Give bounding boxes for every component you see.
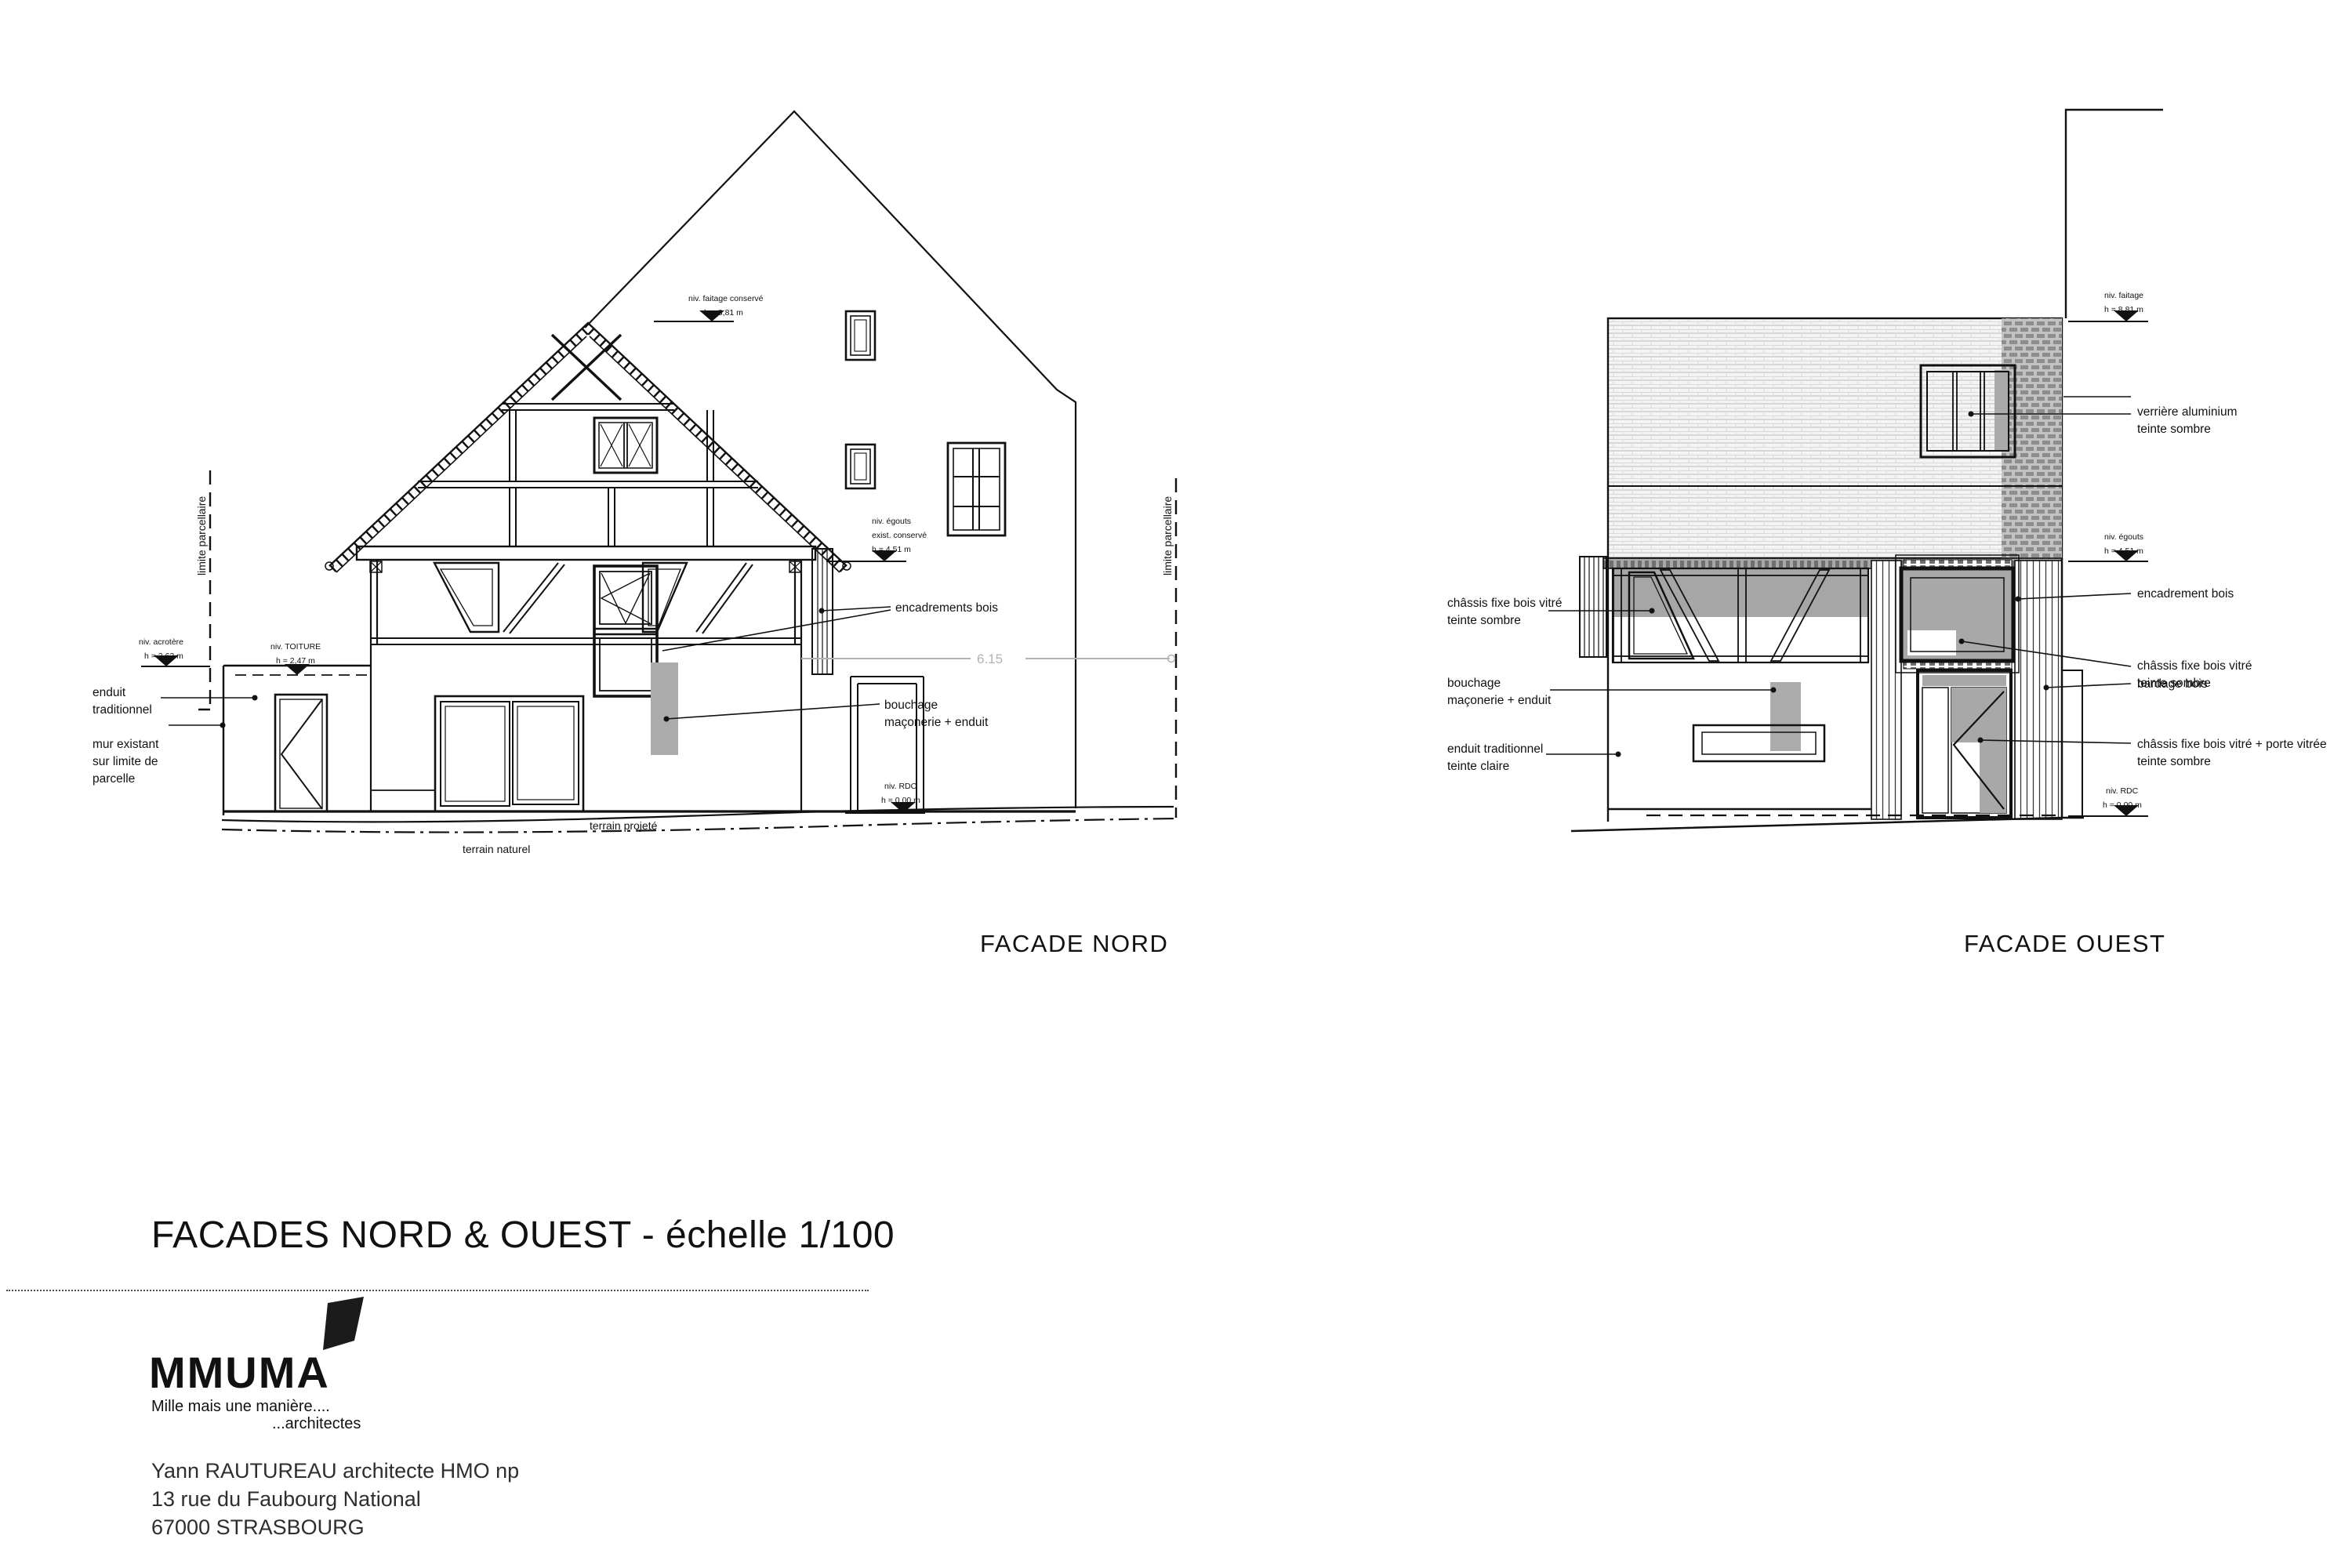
bouchage-patch — [651, 662, 678, 755]
neighbour-window-large — [948, 443, 1005, 535]
mur-label-3: parcelle — [93, 772, 135, 786]
terrain-projete-line — [222, 807, 1174, 822]
roof-ouest — [1608, 318, 2062, 558]
egouts-label-2: exist. conservé — [872, 531, 927, 540]
bouchage-label-1: bouchage — [884, 699, 938, 712]
encadrement-label: encadrement bois — [2137, 587, 2234, 601]
passage-door — [851, 677, 924, 811]
chassis-droit-label-1: châssis fixe bois vitré — [2137, 659, 2252, 673]
drawing-sheet: 6.15 niv. faitage conservé h = 8,81 m ni… — [0, 0, 2352, 1568]
sliding-glass-door — [435, 696, 583, 811]
toiture-marker — [285, 664, 310, 675]
chassis-porte-label-1: châssis fixe bois vitré + porte vitrée — [2137, 738, 2327, 751]
dimension-615: 6.15 — [801, 652, 1175, 666]
architect-address-block: Yann RAUTUREAU architecte HMO np 13 rue … — [151, 1457, 519, 1541]
annex-door — [275, 695, 327, 811]
egouts-ouest-label-1: niv. égouts — [2104, 532, 2143, 542]
attic-window — [594, 418, 657, 473]
toiture-label-1: niv. TOITURE — [270, 642, 321, 652]
terrain-naturel-label: terrain naturel — [463, 843, 530, 855]
architect-street: 13 rue du Faubourg National — [151, 1485, 519, 1513]
limite-gauche-label: limite parcellaire — [195, 496, 208, 575]
bouchage-ouest-label-2: maçonerie + enduit — [1447, 694, 1552, 707]
egouts-ouest-label-2: h = 4,51 m — [2104, 546, 2143, 556]
facade-ouest-drawing: niv. faitage h = 8,81 m niv. égouts h = … — [1447, 110, 2327, 957]
gable-roof — [325, 323, 851, 572]
logo-tagline-2: ...architectes — [272, 1415, 361, 1433]
leaders-nord — [161, 607, 891, 728]
sheet-title: FACADES NORD & OUEST - échelle 1/100 — [151, 1214, 895, 1257]
architect-city: 67000 STRASBOURG — [151, 1513, 519, 1541]
facade-nord-drawing: 6.15 niv. faitage conservé h = 8,81 m ni… — [93, 111, 1176, 957]
chassis-gauche-label-2: teinte sombre — [1447, 614, 1521, 627]
egouts-label-1: niv. égouts — [872, 517, 911, 526]
logo-tagline-1: Mille mais une manière.... — [151, 1398, 330, 1416]
rdc-label-1: niv. RDC — [884, 782, 917, 791]
verriere-dark-zone — [2002, 318, 2062, 558]
neighbour-window-small-bottom — [846, 445, 875, 488]
rdc-ouest-label-1: niv. RDC — [2106, 786, 2139, 796]
encadrements-label: encadrements bois — [895, 601, 998, 615]
mur-label-1: mur existant — [93, 738, 159, 751]
ground-line-ouest — [1571, 818, 2084, 831]
enduit-label-1: enduit — [93, 686, 126, 699]
terrain-projete-label: terrain projeté — [590, 819, 658, 832]
ground-floor-nord — [223, 662, 1076, 811]
verriere-label-2: teinte sombre — [2137, 423, 2211, 436]
bardage-strip-left — [1871, 561, 1901, 819]
dark-fixed-window — [1896, 555, 2019, 673]
facade-nord-caption: FACADE NORD — [980, 930, 1168, 957]
mur-label-2: sur limite de — [93, 755, 158, 768]
bouchage-label-2: maçonerie + enduit — [884, 716, 989, 729]
limite-droite-label: limite parcellaire — [1161, 496, 1174, 575]
egouts-label-3: h = 4,51 m — [872, 545, 911, 554]
right-pilaster — [2062, 670, 2082, 818]
enduit-ouest-label-1: enduit traditionnel — [1447, 742, 1543, 756]
slot-window — [1693, 725, 1824, 761]
dimension-text: 6.15 — [977, 652, 1003, 666]
divider-dotted-line — [6, 1290, 869, 1291]
faitage-label-2: h = 8,81 m — [704, 308, 743, 318]
neighbour-profile — [2066, 110, 2163, 318]
facade-ouest-caption: FACADE OUEST — [1964, 930, 2165, 957]
neighbour-window-small-top — [846, 311, 875, 360]
acrotere-label-2: h = 2,62 m — [144, 652, 183, 661]
architect-name: Yann RAUTUREAU architecte HMO np — [151, 1457, 519, 1485]
eaves-beam — [357, 546, 815, 560]
gable-half-timbering — [418, 335, 758, 546]
bardage-label: bardage bois — [2137, 677, 2208, 691]
faitage-ouest-label-1: niv. faitage — [2104, 291, 2143, 300]
logo-text: MMUMA — [149, 1347, 330, 1398]
chassis-porte-label-2: teinte sombre — [2137, 755, 2211, 768]
annex — [223, 666, 371, 815]
chassis-gauche-label-1: châssis fixe bois vitré — [1447, 597, 1562, 610]
toiture-label-2: h = 2,47 m — [276, 656, 315, 666]
glazed-door — [1918, 670, 2011, 818]
rdc-label-2: h = 0.00 m — [881, 796, 920, 805]
terrain-naturel-line — [222, 818, 1176, 833]
rdc-ouest-label-2: h = 0.00 m — [2103, 800, 2142, 810]
faitage-ouest-label-2: h = 8,81 m — [2104, 305, 2143, 314]
annex-side-strip — [1580, 557, 1606, 657]
faitage-label-1: niv. faitage conservé — [688, 294, 764, 303]
enduit-ouest-label-2: teinte claire — [1447, 760, 1509, 773]
verriere-label-1: verrière aluminium — [2137, 405, 2237, 419]
bouchage-ouest-label-1: bouchage — [1447, 677, 1501, 690]
acrotere-label-1: niv. acrotère — [139, 637, 183, 647]
bouchage-patch-ouest — [1770, 682, 1801, 751]
enduit-label-2: traditionnel — [93, 703, 152, 717]
half-timber-band-ouest — [1613, 568, 1868, 662]
